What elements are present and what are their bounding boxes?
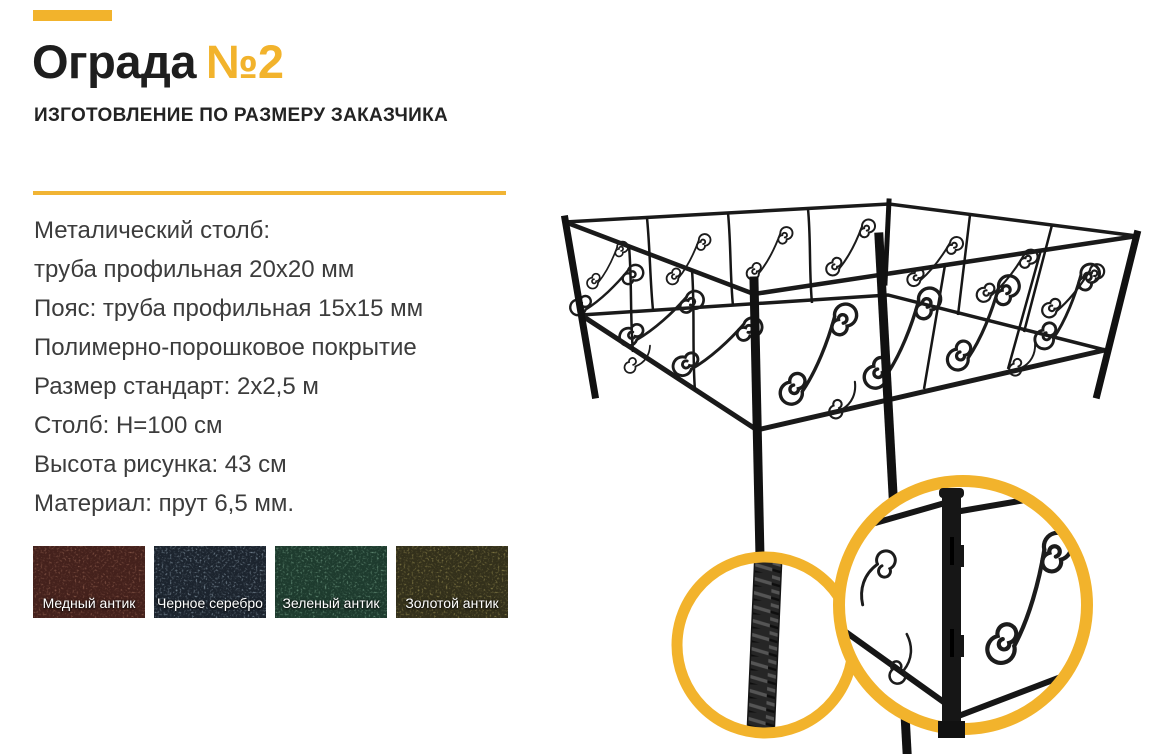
corner-post bbox=[938, 488, 965, 738]
page-title: Ограда№2 bbox=[32, 34, 284, 89]
title-number: №2 bbox=[206, 35, 284, 88]
color-swatch-gold[interactable]: Золотой антик bbox=[396, 546, 508, 618]
spec-line: Высота рисунка: 43 см bbox=[34, 445, 423, 484]
color-swatch-copper[interactable]: Медный антик bbox=[33, 546, 145, 618]
spec-line: труба профильная 20х20 мм bbox=[34, 250, 423, 289]
spec-line: Пояс: труба профильная 15х15 мм bbox=[34, 289, 423, 328]
swatch-label: Черное серебро bbox=[154, 595, 266, 611]
spec-line: Размер стандарт: 2х2,5 м bbox=[34, 367, 423, 406]
divider-line bbox=[33, 191, 506, 195]
title-main: Ограда bbox=[32, 35, 196, 88]
swatch-label: Золотой антик bbox=[396, 595, 508, 611]
spec-line: Полимерно-порошковое покрытие bbox=[34, 328, 423, 367]
product-card: Ограда№2 ИЗГОТОВЛЕНИЕ ПО РАЗМЕРУ ЗАКАЗЧИ… bbox=[0, 0, 1159, 754]
spec-line: Металический столб: bbox=[34, 211, 423, 250]
spec-line: Материал: прут 6,5 мм. bbox=[34, 484, 423, 523]
color-swatch-green[interactable]: Зеленый антик bbox=[275, 546, 387, 618]
swatch-label: Медный антик bbox=[33, 595, 145, 611]
fence-illustration bbox=[545, 195, 1159, 754]
color-swatch-black-silver[interactable]: Черное серебро bbox=[154, 546, 266, 618]
accent-bar bbox=[33, 10, 112, 21]
corner-detail-zoom bbox=[829, 481, 1125, 738]
subtitle: ИЗГОТОВЛЕНИЕ ПО РАЗМЕРУ ЗАКАЗЧИКА bbox=[34, 105, 448, 127]
swatch-label: Зеленый антик bbox=[275, 595, 387, 611]
post-detail-zoom bbox=[677, 546, 853, 743]
color-options: Медный антик Черное серебро Зеленый анти… bbox=[33, 546, 508, 618]
spec-line: Столб: Н=100 см bbox=[34, 406, 423, 445]
spec-list: Металический столб: труба профильная 20х… bbox=[34, 211, 423, 523]
